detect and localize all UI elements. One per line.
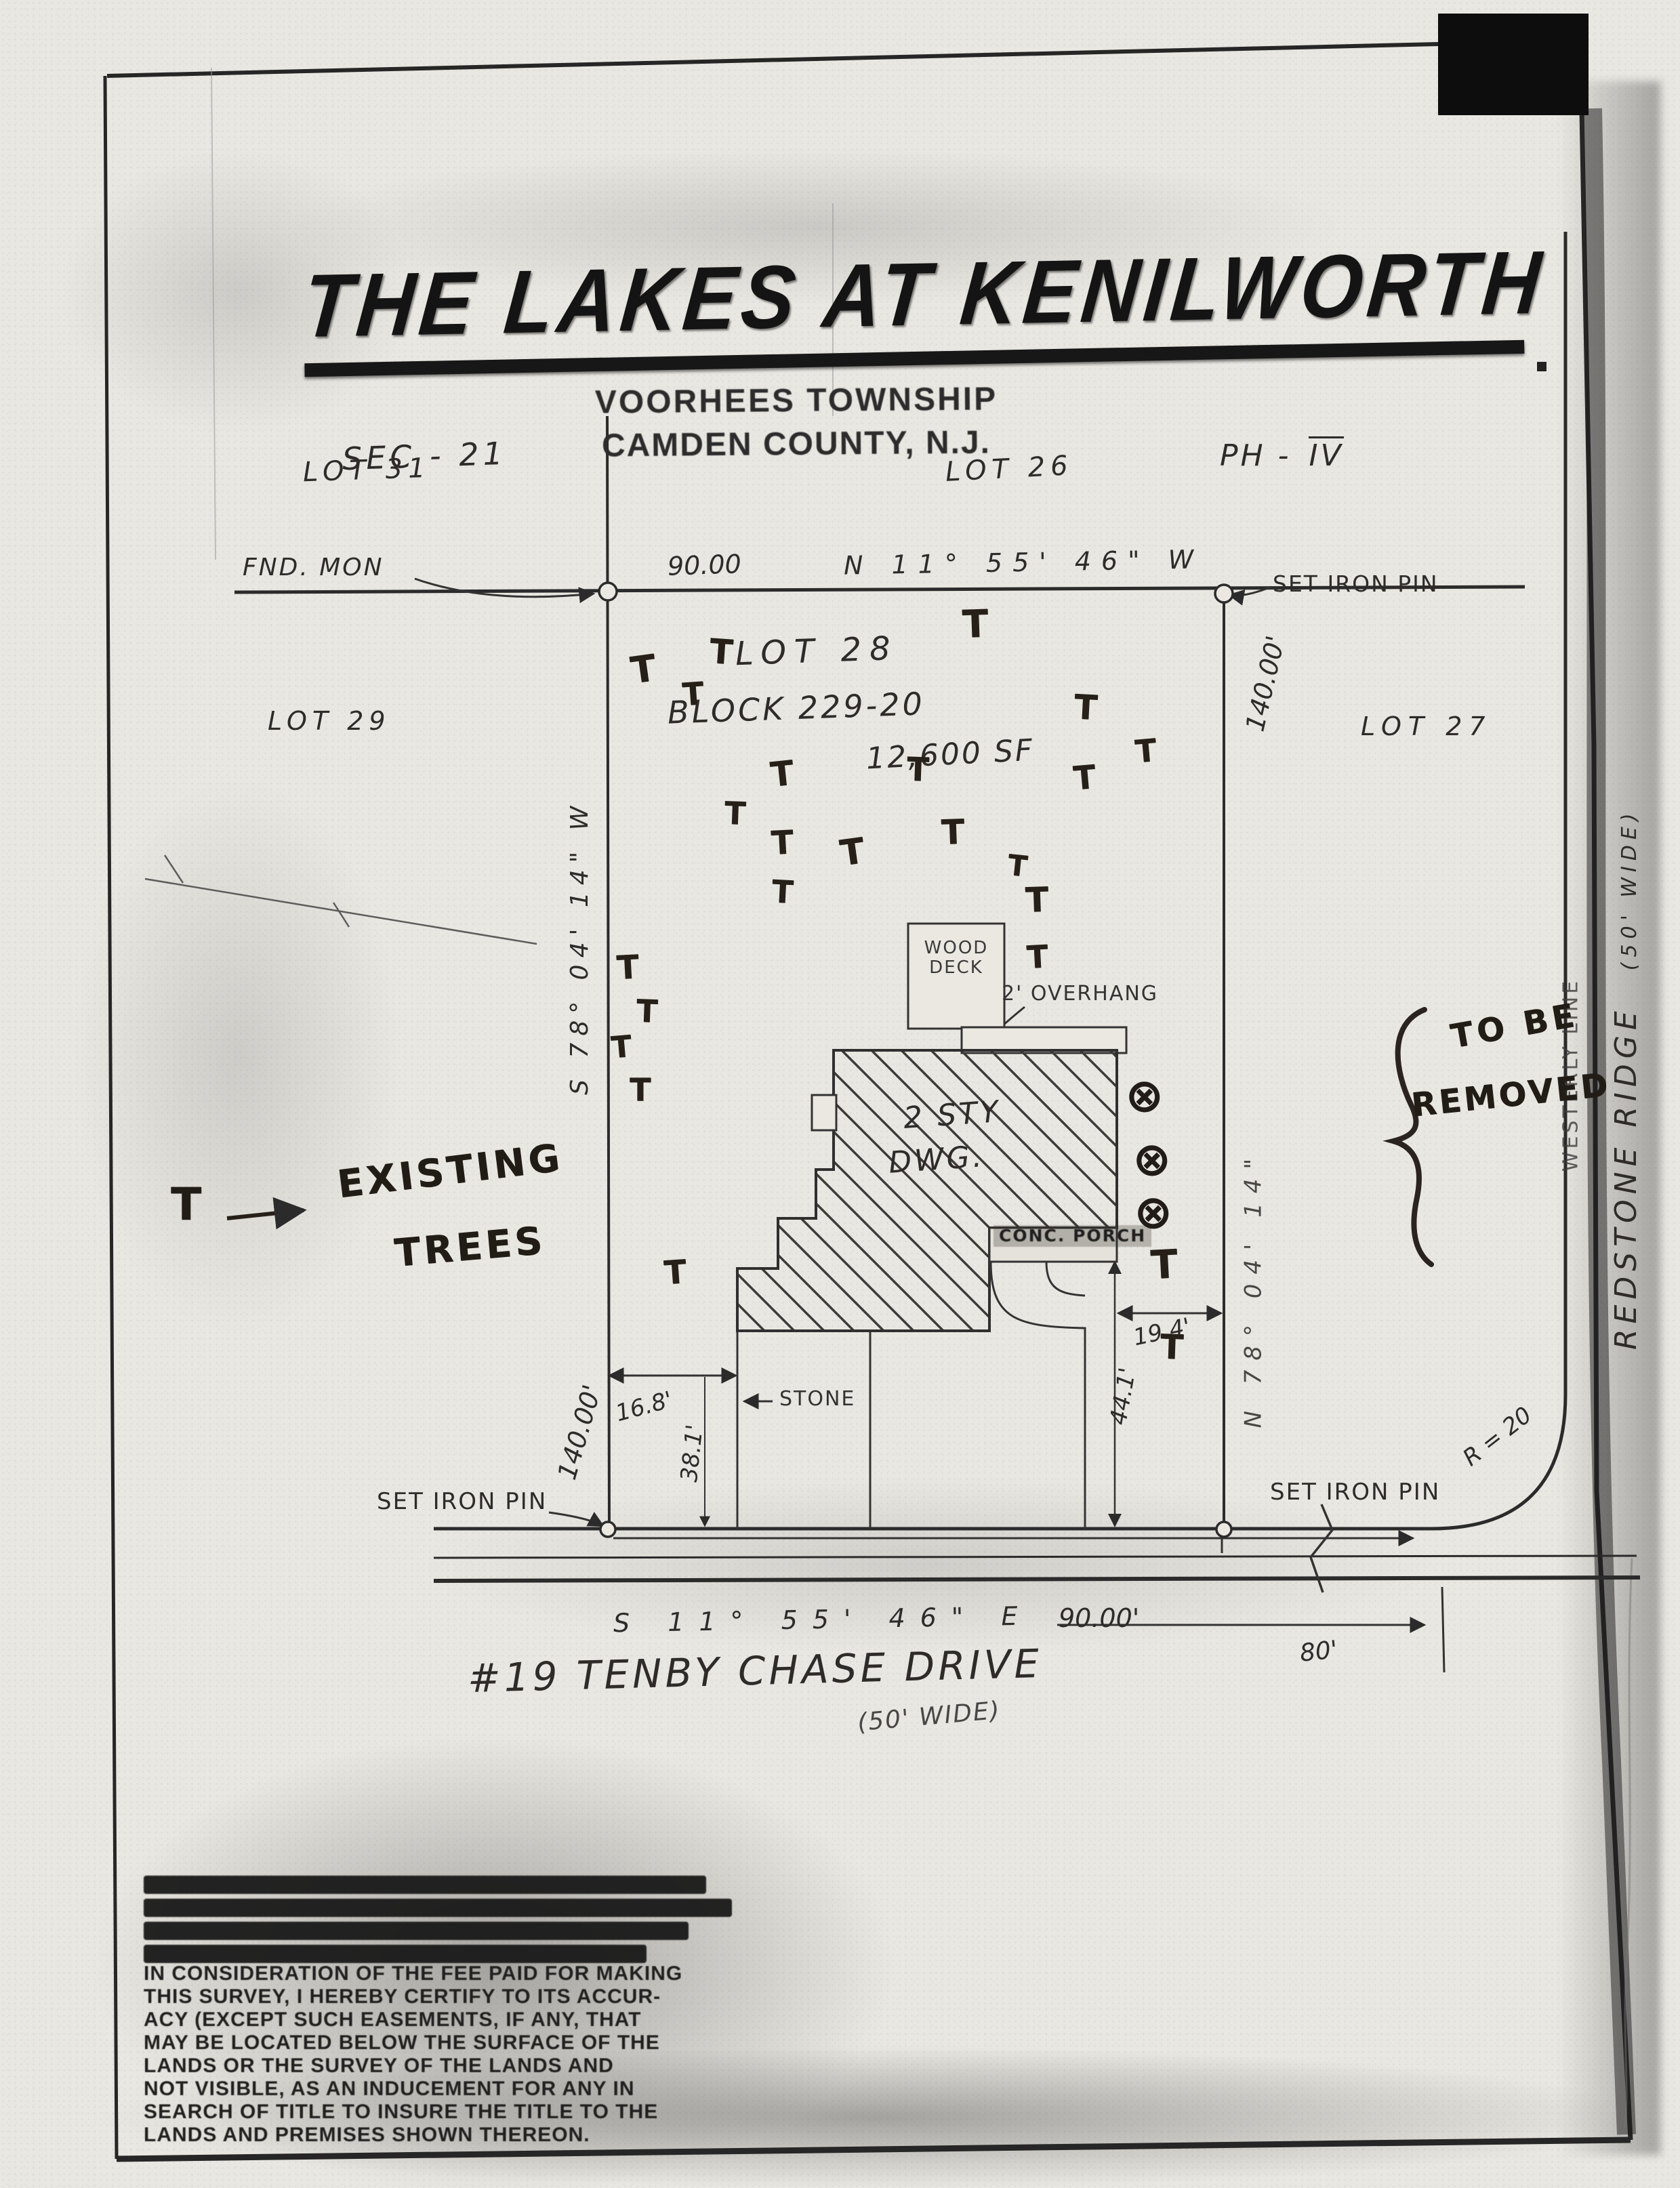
iron-pin-marker-se [1216,1522,1231,1537]
existing-tree-mark: T [1160,1329,1184,1364]
title-period-dot [1537,362,1546,371]
overhang-label: 2' OVERHANG [1002,983,1158,1005]
existing-tree-mark: T [636,995,658,1027]
certification-line: SEARCH OF TITLE TO INSURE THE TITLE TO T… [144,2101,682,2124]
existing-tree-mark: T [616,951,640,985]
lot-31-label: LOT 31 [302,453,431,488]
side-street-width: (50' WIDE) [1618,808,1641,970]
side-street-name: REDSTONE RIDGE [1609,1006,1643,1350]
south-distance-label: 90.00' [1059,1605,1139,1633]
walk-inner-edge [1046,1262,1085,1296]
existing-tree-mark: T [769,756,795,791]
existing-tree-mark: T [1073,690,1099,725]
redacted-text-bar [144,1876,706,1894]
existing-tree-mark: T [838,833,867,871]
existing-tree-mark: T [628,650,658,690]
parcel-lot-label: LOT 28 [735,631,899,672]
existing-tree-mark: T [1072,761,1097,796]
certification-line: THIS SURVEY, I HEREBY CERTIFY TO ITS ACC… [144,1985,682,2008]
dwelling-label-line2: DWG. [884,1140,988,1180]
phase-numeral: IV [1309,436,1343,472]
existing-tree-mark: T [1150,1244,1179,1285]
house-outline [737,1050,1117,1331]
certification-line: IN CONSIDERATION OF THE FEE PAID FOR MAK… [144,1962,682,1985]
existing-tree-mark: T [906,753,929,786]
certification-line: LANDS OR THE SURVEY OF THE LANDS AND [144,2055,682,2078]
wood-deck-line2: DECK [908,958,1004,978]
existing-tree-mark: T [630,1074,651,1105]
existing-tree-mark: T [941,814,965,849]
lot-29-label: LOT 29 [268,707,391,736]
certification-line: ACY (EXCEPT SUCH EASEMENTS, IF ANY, THAT [144,2008,682,2031]
phase-label: PH - IV [1220,436,1344,472]
existing-tree-mark: T [1134,735,1157,768]
found-monument-marker [599,583,617,600]
existing-tree-mark: T [1025,882,1049,917]
dwelling-label-line1: 2 STY [900,1096,1004,1136]
existing-tree-mark: T [610,1032,633,1063]
side-street-label: REDSTONE RIDGE (50' WIDE) [1610,693,1643,1465]
existing-tree-mark: T [681,678,705,710]
certification-line: MAY BE LOCATED BELOW THE SURFACE OF THE [144,2031,682,2055]
street-offset-label: 80' [1298,1636,1339,1667]
east-bearing-label: N 78° 04' 14" [1241,1147,1266,1431]
legend-arrow-icon [227,1210,304,1218]
removed-tree-mark: ⊗ [1125,1073,1164,1119]
existing-tree-mark: T [771,875,794,908]
chimney-outline [812,1095,836,1130]
walk-outer-edge [991,1262,1085,1529]
lot-27-label: LOT 27 [1361,713,1492,741]
lot-26-label: LOT 26 [945,451,1074,487]
township-subtitle: VOORHEES TOWNSHIP [515,381,1078,421]
existing-tree-mark: T [1026,941,1049,973]
certification-line: LANDS AND PREMISES SHOWN THEREON. [144,2124,682,2147]
iron-pin-marker-ne [1215,585,1233,602]
porch-label: CONC. PORCH [993,1225,1151,1247]
west-bearing-label: S 78° 04' 14" W [567,758,594,1137]
wood-deck-label: WOOD DECK [908,938,1004,977]
iron-pin-ne-label: SET IRON PIN [1273,572,1439,596]
redacted-text-bar [144,1945,647,1963]
iron-pin-marker-sw [600,1522,615,1537]
certification-text: IN CONSIDERATION OF THE FEE PAID FOR MAK… [144,1962,682,2147]
north-distance-label: 90.00 [667,550,741,581]
certification-line: NOT VISIBLE, AS AN INDUCEMENT FOR ANY IN [144,2078,682,2101]
scan-corner-artifact [1438,14,1589,115]
pencil-scratch [145,855,537,944]
phase-prefix: PH - [1220,438,1291,473]
redacted-text-bar [144,1899,732,1917]
existing-tree-mark: T [771,826,794,860]
removed-tree-mark: ⊗ [1132,1137,1171,1183]
existing-tree-mark: T [708,634,734,669]
existing-tree-mark: T [663,1256,687,1289]
existing-tree-mark: T [1006,851,1029,882]
iron-pin-sw-label: SET IRON PIN [377,1489,547,1514]
existing-tree-mark: T [962,605,989,644]
iron-pin-se-label: SET IRON PIN [1270,1480,1440,1505]
removed-tree-mark: ⊗ [1134,1190,1172,1236]
redacted-text-bar [144,1922,689,1940]
found-monument-label: FND. MON [243,554,384,581]
legend-tree-symbol: T [171,1180,201,1230]
survey-scan-page: THE LAKES AT KENILWORTH VOORHEES TOWNSHI… [0,0,1680,2188]
stone-walk-label: STONE [779,1388,855,1410]
wood-deck-line1: WOOD [908,938,1004,958]
removal-brace [1393,1010,1431,1264]
existing-tree-mark: T [724,797,746,829]
